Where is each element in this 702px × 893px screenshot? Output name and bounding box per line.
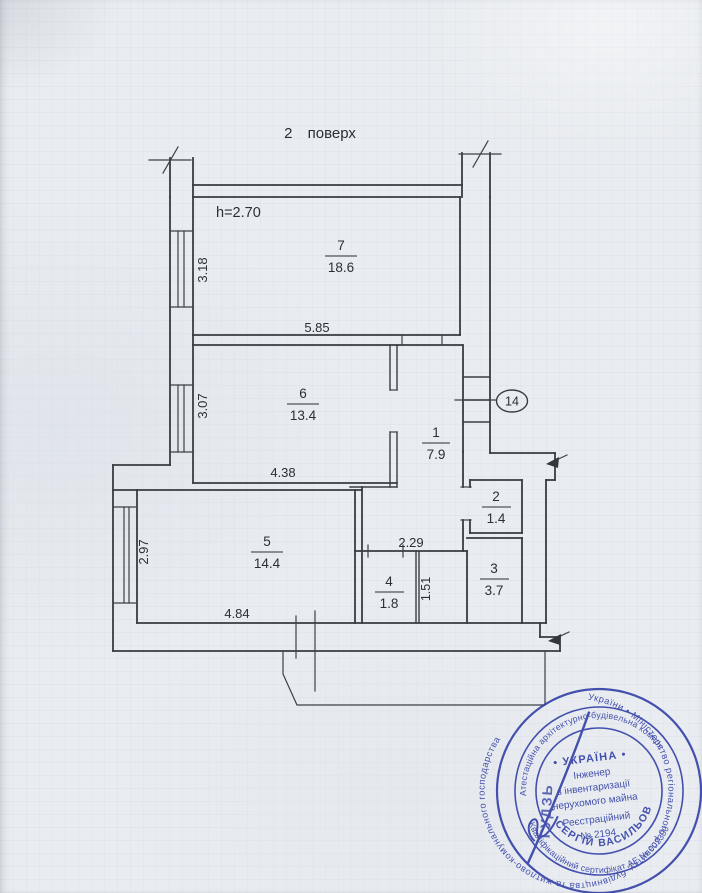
room4-area: 1.8	[380, 596, 399, 611]
dim-room6-width: 4.38	[270, 465, 295, 480]
interior-walls	[113, 197, 522, 623]
room5-area: 14.4	[254, 556, 281, 571]
callout-14-label: 14	[505, 395, 519, 409]
room2-area: 1.4	[487, 511, 506, 526]
scanned-floor-plan-page: 2 поверх h=2.70 7 18.6 6 13.4 1 7.9 5 14…	[0, 0, 702, 893]
room7-number: 7	[337, 238, 345, 253]
room5-number: 5	[263, 534, 271, 549]
room6-number: 6	[299, 386, 307, 401]
room2-number: 2	[492, 489, 500, 504]
room3-area: 3.7	[485, 583, 504, 598]
stamp-country: • УКРАЇНА •	[553, 747, 628, 769]
room6-area: 13.4	[290, 408, 317, 423]
dim-room5-width: 4.84	[224, 606, 249, 621]
dim-room5-depth: 2.97	[136, 539, 151, 564]
dim-room7-width: 5.85	[304, 320, 329, 335]
room7-area: 18.6	[328, 260, 354, 275]
stamp-surname: ГУДЗЬ	[537, 783, 556, 839]
stamp-line4: Реєстраційний	[562, 810, 631, 829]
windows	[113, 231, 193, 603]
dim-hall-depth: 1.51	[419, 577, 433, 601]
entry-arrows	[546, 455, 569, 645]
balcony	[283, 611, 545, 705]
dim-room7-depth: 3.18	[195, 257, 210, 282]
callout-14: 14	[455, 390, 528, 412]
room3-number: 3	[490, 561, 498, 576]
ceiling-height-note: h=2.70	[216, 205, 261, 221]
certification-stamp: України • Міністерство регіонального роз…	[465, 677, 702, 893]
room1-area: 7.9	[427, 447, 446, 462]
stamp-line1: Інженер	[573, 766, 612, 782]
dim-hall-width: 2.29	[398, 535, 423, 550]
floor-plan-drawing: 2 поверх h=2.70 7 18.6 6 13.4 1 7.9 5 14…	[0, 0, 702, 893]
room4-number: 4	[385, 574, 393, 589]
dim-room6-depth: 3.07	[195, 393, 210, 418]
floor-title: 2 поверх	[284, 125, 356, 142]
room1-number: 1	[432, 425, 440, 440]
